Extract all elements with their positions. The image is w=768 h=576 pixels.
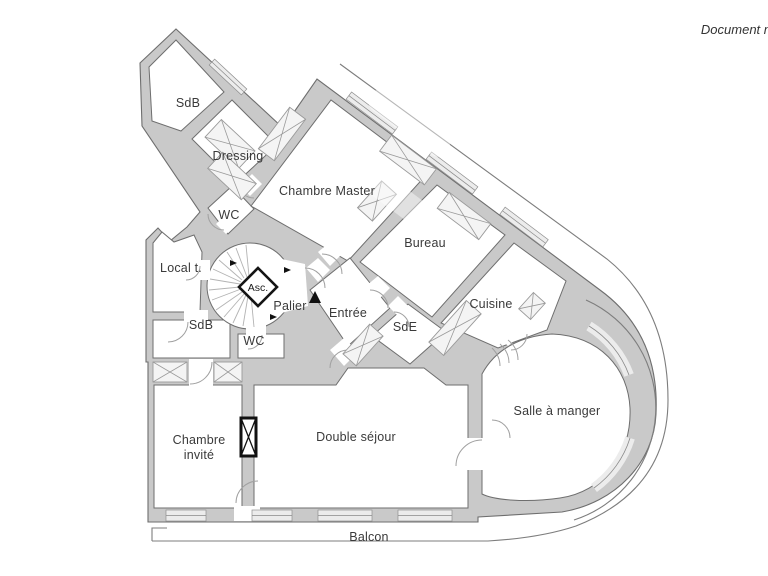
room-chambre-invite-label-line1: Chambre — [173, 433, 226, 447]
room-double-sejour-label: Double séjour — [316, 430, 396, 444]
balcon-label: Balcon — [349, 530, 388, 544]
room-wc-bottom-label: WC — [243, 334, 264, 348]
room-cuisine-label: Cuisine — [469, 297, 512, 311]
room-chambre-invite-label-line2: invité — [184, 448, 214, 462]
room-sdb-top-label: SdB — [176, 96, 200, 110]
room-dressing-label: Dressing — [213, 149, 264, 163]
elevator-label: Asc. — [248, 282, 268, 294]
document-note: Document n — [701, 22, 768, 37]
room-sde-label: SdE — [393, 320, 417, 334]
room-wc-top-label: WC — [218, 208, 239, 222]
room-entree-label: Entrée — [329, 306, 367, 320]
room-palier-label: Palier — [273, 299, 306, 313]
floor-plan: Asc. SdB Dressing Chambre Master WC Bure… — [0, 0, 768, 576]
room-sdb-bottom-label: SdB — [189, 318, 213, 332]
room-chambre-master-label: Chambre Master — [279, 184, 375, 198]
room-local-technique-label: Local t. — [160, 261, 202, 275]
room-salle-a-manger-label: Salle à manger — [514, 404, 601, 418]
fireplace — [241, 418, 256, 456]
room-bureau-label: Bureau — [404, 236, 446, 250]
